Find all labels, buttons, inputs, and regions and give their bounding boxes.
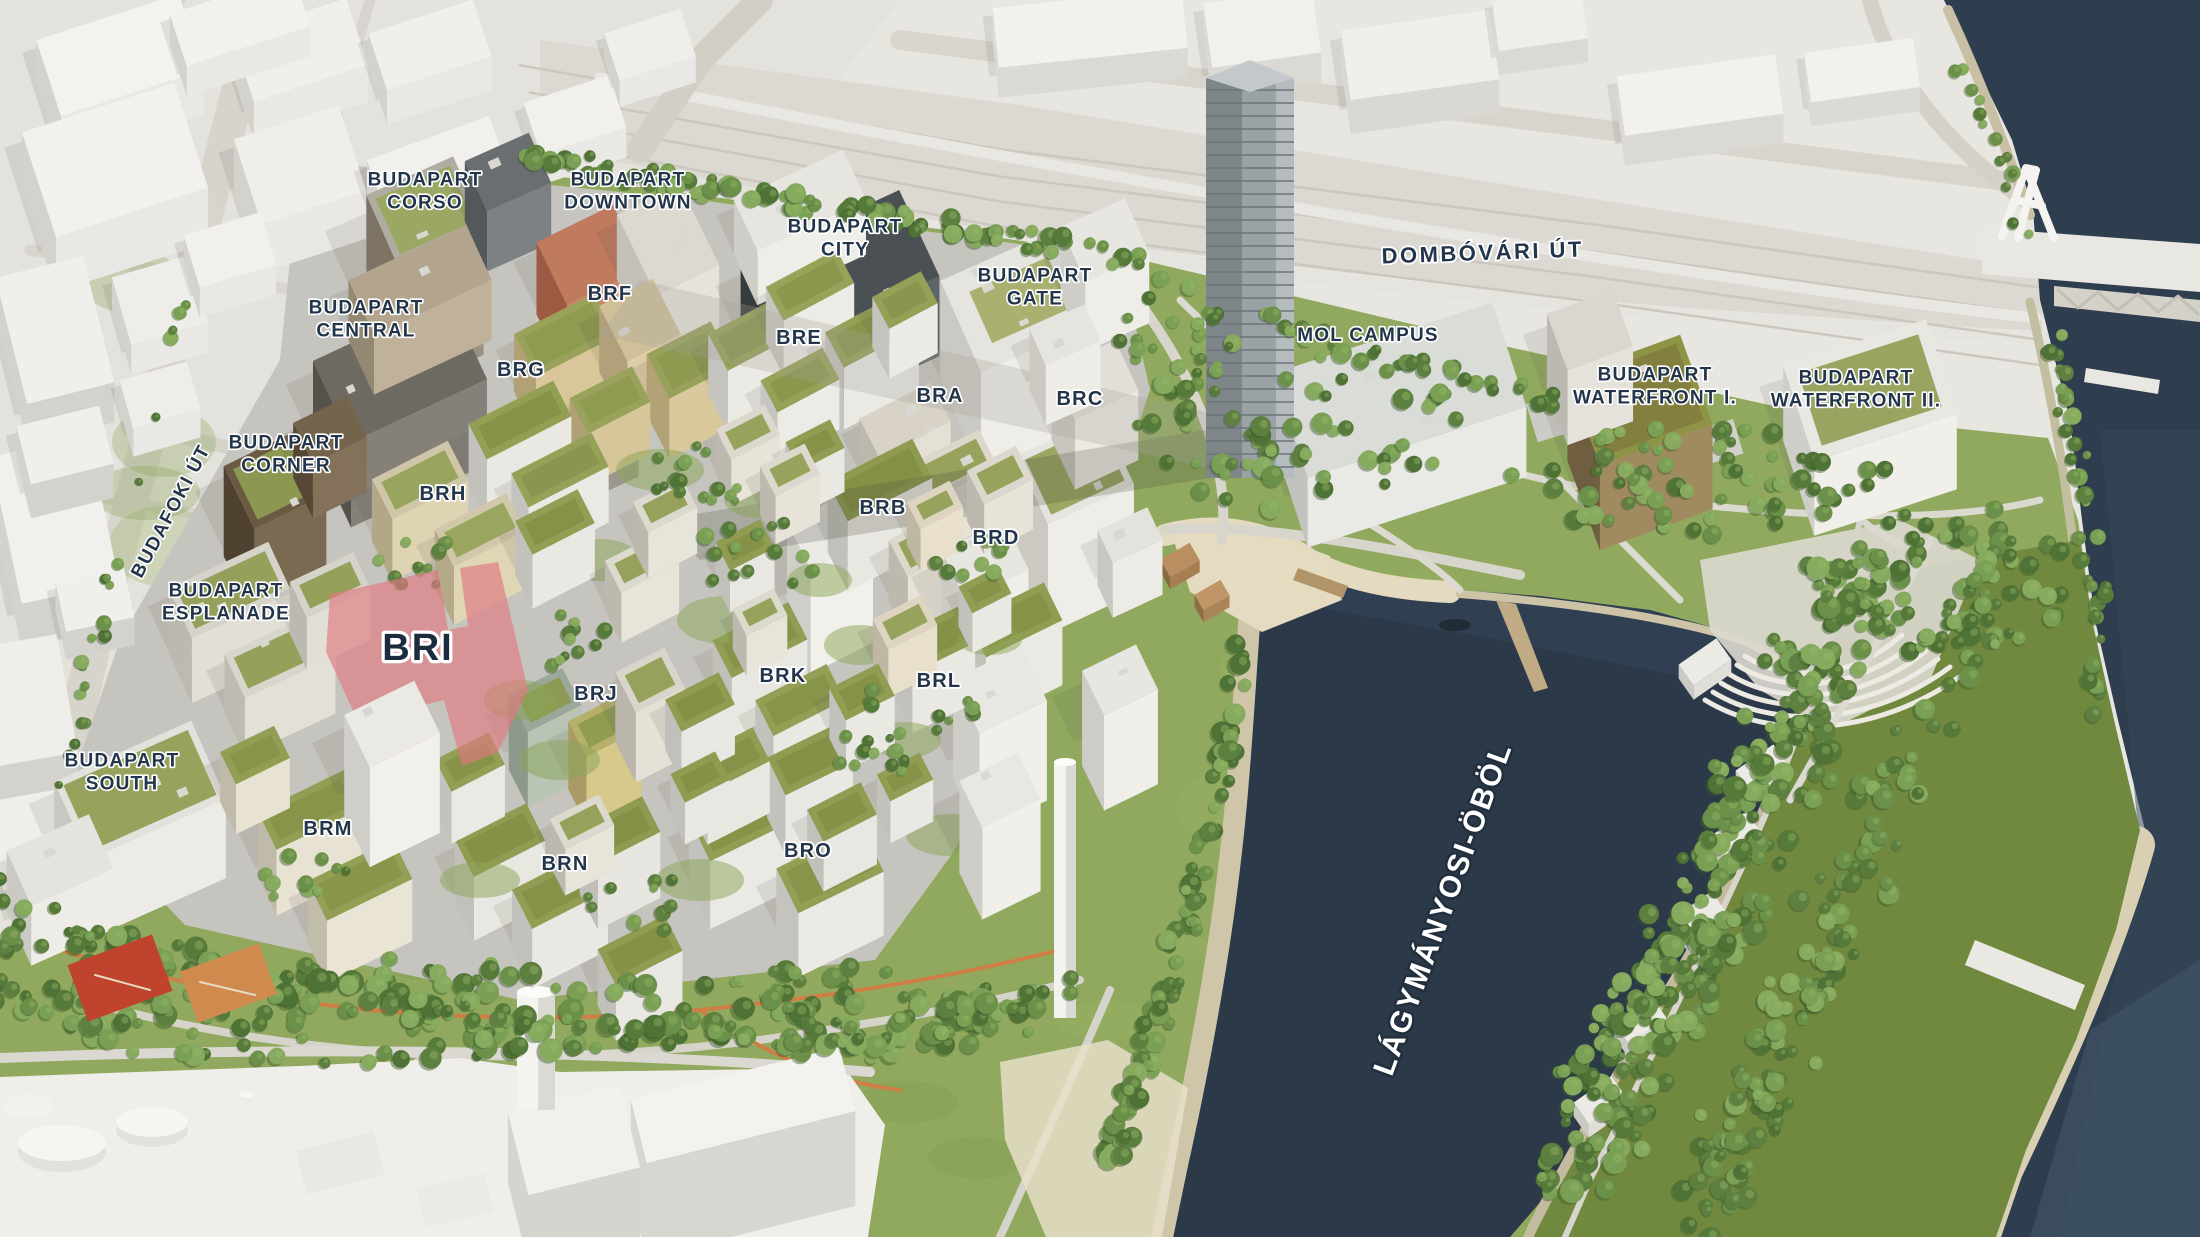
svg-text:WATERFRONT II.: WATERFRONT II. [1771,391,1942,412]
svg-text:CORNER: CORNER [241,456,331,477]
svg-text:BRK: BRK [760,665,807,687]
svg-text:BUDAPART: BUDAPART [368,169,483,190]
svg-text:BRD: BRD [973,527,1020,549]
svg-text:BUDAPART: BUDAPART [65,750,180,771]
svg-text:BRL: BRL [917,670,962,692]
svg-text:MOL CAMPUS: MOL CAMPUS [1297,325,1438,346]
svg-text:BRB: BRB [860,497,907,519]
svg-text:BUDAPART: BUDAPART [229,432,344,453]
svg-text:BRH: BRH [420,483,467,505]
svg-text:BRN: BRN [542,853,589,875]
svg-text:BRG: BRG [497,359,545,381]
svg-text:BRA: BRA [917,385,964,407]
svg-text:BUDAPART: BUDAPART [571,169,686,190]
svg-text:BRI: BRI [382,627,453,669]
svg-text:GATE: GATE [1007,289,1063,310]
svg-text:SOUTH: SOUTH [86,774,159,795]
svg-text:BRM: BRM [303,818,352,840]
svg-text:BUDAPART: BUDAPART [1799,367,1914,388]
svg-text:WATERFRONT I.: WATERFRONT I. [1573,388,1737,409]
svg-text:BRJ: BRJ [574,683,618,705]
svg-text:BUDAPART: BUDAPART [309,297,424,318]
svg-text:CENTRAL: CENTRAL [316,321,415,342]
svg-text:BRO: BRO [784,840,832,862]
svg-text:BRF: BRF [588,283,633,305]
svg-text:CITY: CITY [821,240,869,261]
svg-text:BUDAPART: BUDAPART [169,580,284,601]
svg-text:BRE: BRE [776,327,822,349]
svg-text:BUDAPART: BUDAPART [978,265,1093,286]
svg-text:BUDAPART: BUDAPART [1598,364,1713,385]
svg-text:DOWNTOWN: DOWNTOWN [564,193,691,214]
svg-text:ESPLANADE: ESPLANADE [162,604,290,625]
svg-text:BUDAPART: BUDAPART [788,216,903,237]
svg-text:BRC: BRC [1057,388,1104,410]
svg-text:CORSO: CORSO [387,193,463,214]
